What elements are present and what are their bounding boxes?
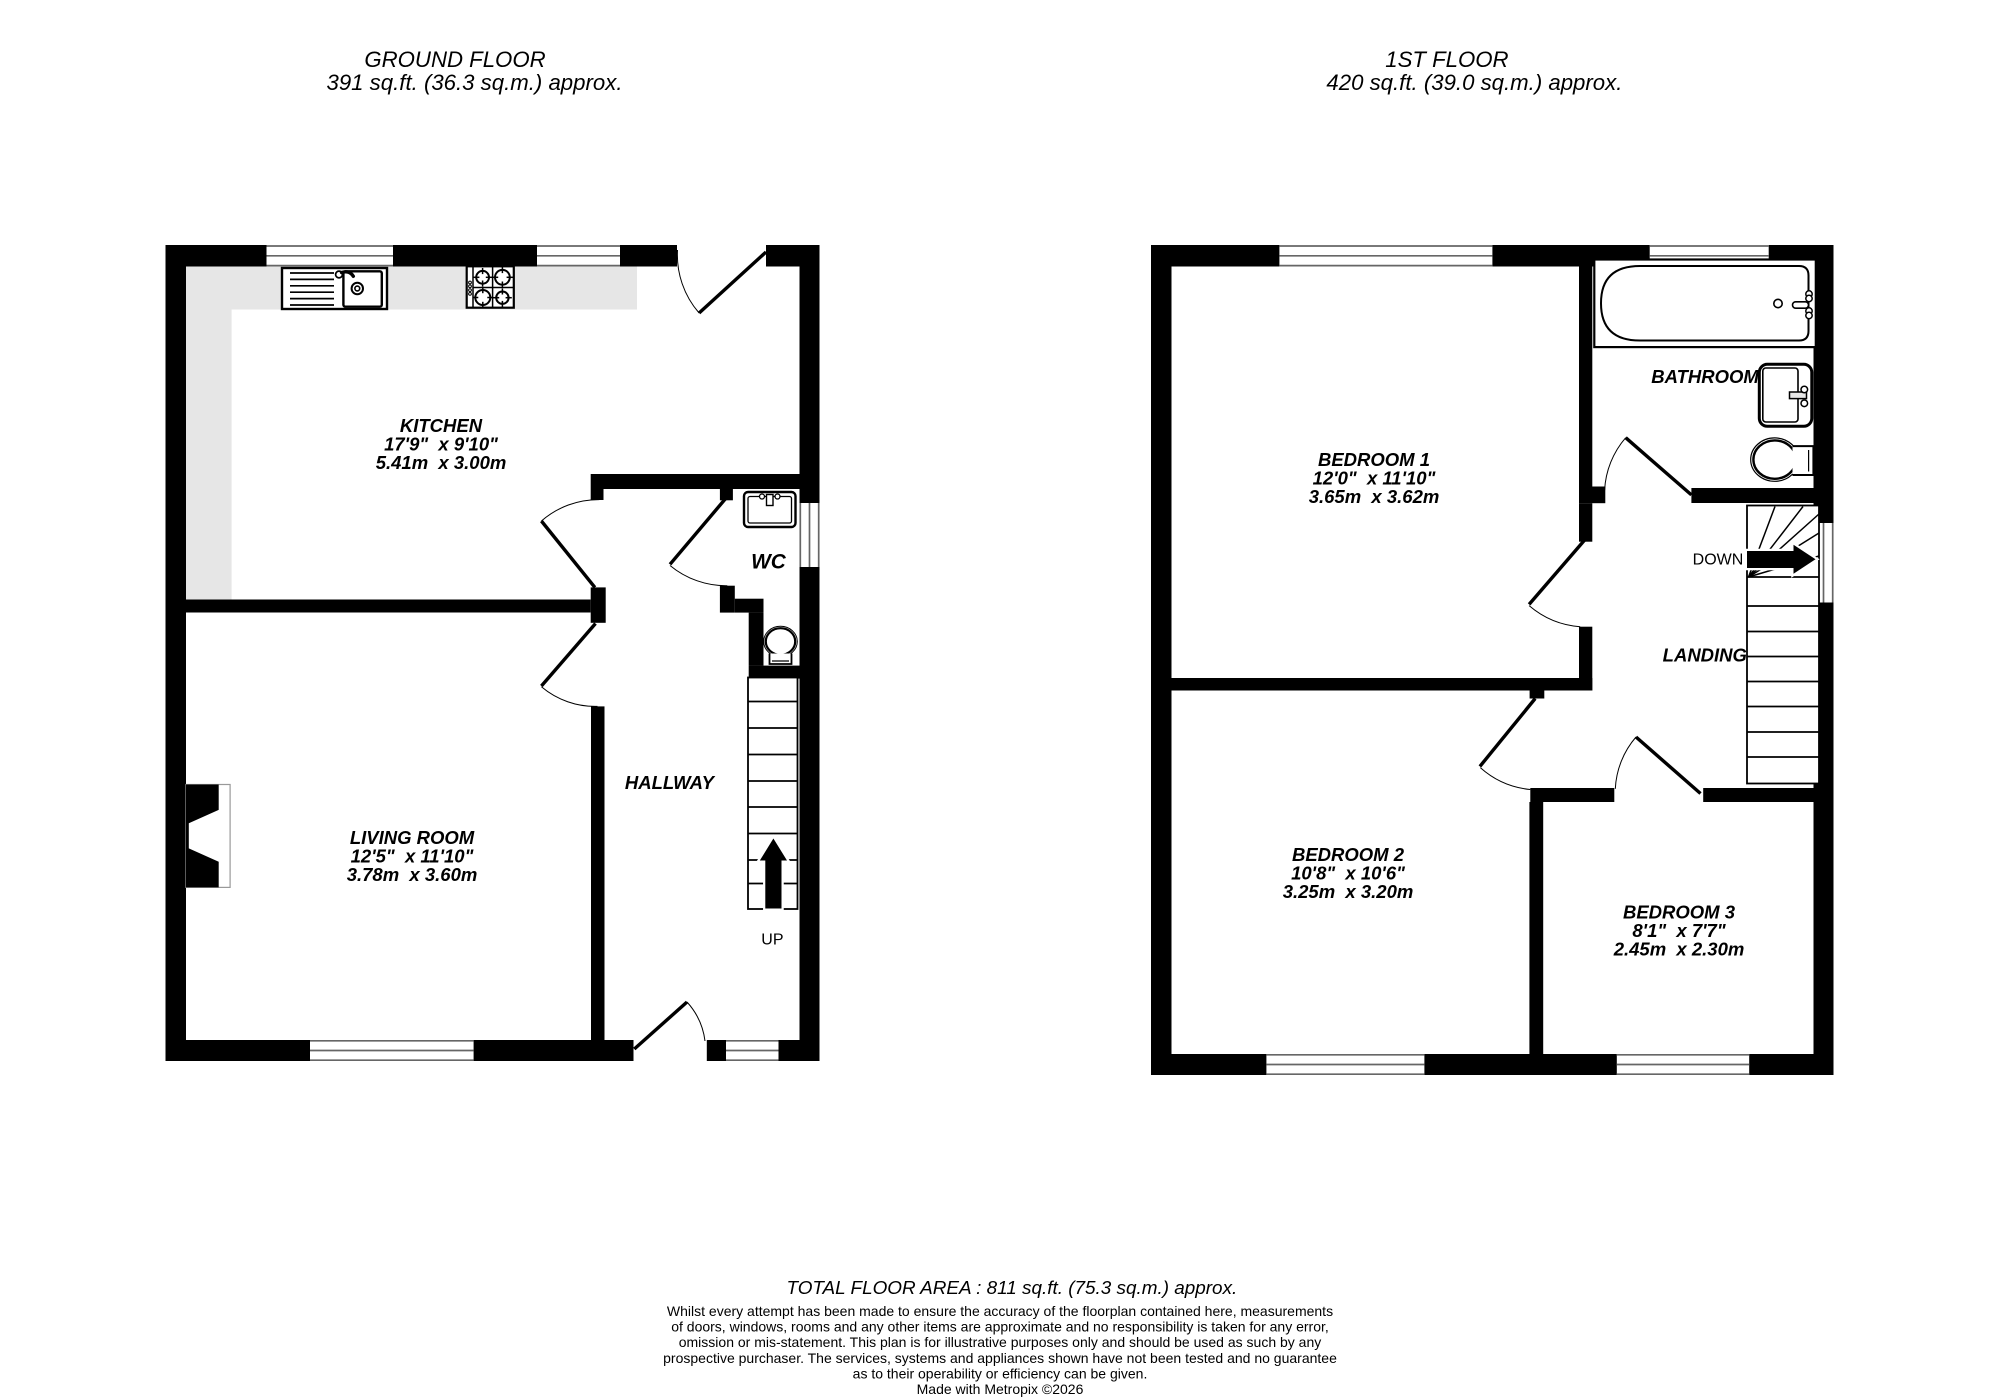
svg-text:5.41m x 3.00m: 5.41m x 3.00m — [376, 452, 507, 473]
svg-text:Whilst every attempt has been: Whilst every attempt has been made to en… — [667, 1303, 1333, 1319]
svg-text:BATHROOM: BATHROOM — [1651, 366, 1759, 387]
svg-text:WC: WC — [751, 551, 787, 574]
svg-text:of doors, windows, rooms and a: of doors, windows, rooms and any other i… — [671, 1319, 1329, 1335]
svg-text:GROUND FLOOR: GROUND FLOOR — [364, 47, 545, 72]
svg-text:Made with Metropix ©2026: Made with Metropix ©2026 — [917, 1381, 1084, 1397]
svg-text:2.45m x 2.30m: 2.45m x 2.30m — [1613, 938, 1745, 959]
svg-text:3.25m x 3.20m: 3.25m x 3.20m — [1283, 881, 1414, 902]
svg-text:3.65m x 3.62m: 3.65m x 3.62m — [1309, 486, 1440, 507]
svg-text:LANDING: LANDING — [1663, 645, 1747, 666]
svg-text:prospective purchaser. The ser: prospective purchaser. The services, sys… — [663, 1350, 1337, 1366]
svg-text:HALLWAY: HALLWAY — [625, 772, 716, 793]
svg-text:as to their operability or eff: as to their operability or efficiency ca… — [853, 1365, 1148, 1381]
svg-text:1ST FLOOR: 1ST FLOOR — [1385, 47, 1508, 72]
svg-text:391 sq.ft. (36.3 sq.m.) approx: 391 sq.ft. (36.3 sq.m.) approx. — [327, 70, 623, 95]
svg-text:TOTAL FLOOR AREA : 811 sq.ft.: TOTAL FLOOR AREA : 811 sq.ft. (75.3 sq.m… — [787, 1278, 1238, 1299]
svg-text:420 sq.ft. (39.0 sq.m.) approx: 420 sq.ft. (39.0 sq.m.) approx. — [1326, 70, 1622, 95]
svg-text:DOWN: DOWN — [1693, 552, 1744, 569]
svg-text:omission or mis-statement. Thi: omission or mis-statement. This plan is … — [679, 1334, 1322, 1350]
svg-text:3.78m x 3.60m: 3.78m x 3.60m — [347, 864, 478, 885]
svg-text:UP: UP — [761, 932, 783, 949]
